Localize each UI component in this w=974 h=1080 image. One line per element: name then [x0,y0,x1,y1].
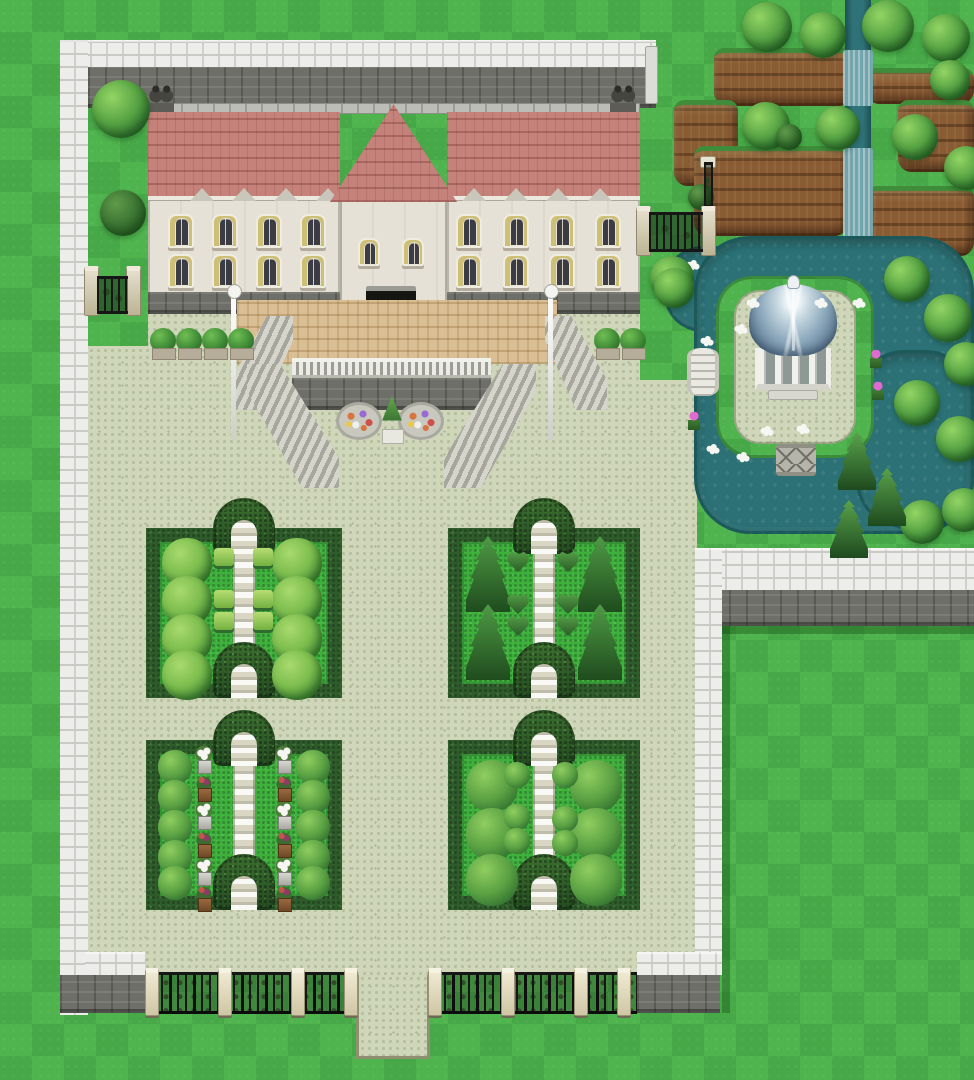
flower-pedestal [196,830,212,858]
game-map: Top-down RPG tile map of a walled mansio… [0,0,974,1080]
stone-bridge-south[interactable] [776,444,816,476]
tree [930,60,970,100]
round-bush [158,780,192,814]
tree [936,416,974,462]
hedge-arch-gate-north[interactable] [213,498,275,554]
lamp-post [231,294,236,440]
potted-bush [202,328,228,360]
north-wall-cap [60,40,656,67]
flower-pedestal [196,858,212,886]
east-wall [695,548,722,975]
shuttered-window [595,254,621,288]
tree [884,256,930,302]
shuttered-window [456,214,482,248]
north-gate-fence-stub [704,162,713,208]
tree [92,80,150,138]
shuttered-window [212,214,238,248]
dirt-cliff-terrace [714,48,852,106]
wall-shadow-south [701,626,974,634]
hedge-arch-gate-south[interactable] [213,642,275,698]
round-bush [504,762,530,788]
bird-statue-pair [610,84,636,112]
shuttered-window [549,254,575,288]
north-iron-gate[interactable] [649,212,703,252]
fence-stone-pillar [501,968,515,1016]
shuttered-window [300,254,326,288]
round-bush [570,854,622,906]
round-bush [158,810,192,844]
flower-pedestal [276,858,292,886]
tree [816,106,860,150]
square-trimmed-bush [214,590,234,608]
round-bush [296,780,330,814]
square-trimmed-bush [253,590,273,608]
south-exit-path[interactable] [356,975,430,1059]
waterfall [843,148,873,238]
shuttered-window [256,214,282,248]
shuttered-window [212,254,238,288]
flower-cluster [796,424,810,436]
round-bush [158,866,192,900]
large-garden-bush [272,650,322,700]
tree [100,190,146,236]
tree [924,294,972,342]
potted-bush [594,328,620,360]
flower-pedestal [196,802,212,830]
potted-bush [228,328,254,360]
shuttered-window [503,254,529,288]
potted-bush [620,328,646,360]
iron-fence [428,972,637,1014]
flower-pedestal [276,746,292,774]
potted-bush [176,328,202,360]
flower-cluster [814,298,828,310]
shuttered-window [358,238,380,266]
fence-stone-pillar [291,968,305,1016]
mansion-roof-right-wing [447,112,640,198]
flower-pedestal [276,774,292,802]
gazebo-finial [787,275,800,289]
hedge-arch-gate-north[interactable] [213,710,275,766]
bottom-left-wall-cap [85,952,145,975]
lamp-post [548,294,553,440]
hedge-arch-gate-south[interactable] [513,854,575,910]
tree [776,124,802,150]
tree [742,2,792,52]
square-trimmed-bush [253,548,273,566]
bottom-wall-left-face [60,975,145,1013]
dirt-cliff-terrace [694,146,848,236]
flower-cluster [734,324,748,336]
flower-cluster [852,298,866,310]
round-bush [552,830,578,856]
tree [654,268,694,308]
shuttered-window [595,214,621,248]
flower-pedestal [276,802,292,830]
bird-statue-pair [148,84,174,112]
tree [892,114,938,160]
fence-stone-pillar [145,968,159,1016]
southeast-wall-face [695,590,974,626]
shuttered-window [456,254,482,288]
west-gate-pillar [126,266,141,316]
flower-pedestal [276,830,292,858]
square-trimmed-bush [253,612,273,630]
terrace-balustrade [292,358,491,378]
flower-pedestal [196,774,212,802]
bottom-wall-right-face [637,975,720,1013]
round-bush [158,750,192,784]
hedge-arch-gate-north[interactable] [513,498,575,554]
flower-cluster [736,452,750,464]
shuttered-window [549,214,575,248]
stone-bridge-west[interactable] [687,348,719,396]
flower-cluster [872,382,884,400]
round-bush [296,810,330,844]
hedge-arch-gate-south[interactable] [213,854,275,910]
flower-pedestal [196,884,212,912]
mansion-roof-left-wing [148,112,340,198]
large-garden-bush [162,650,212,700]
iron-fence [145,972,358,1014]
west-wall [60,40,88,1015]
waterfall [843,50,873,106]
square-trimmed-bush [214,612,234,630]
round-bush [466,854,518,906]
tree [922,14,970,62]
flower-cluster [706,444,720,456]
flower-cluster [688,412,700,430]
gazebo-step[interactable] [768,390,818,400]
flower-cluster [870,350,882,368]
round-bush [504,828,530,854]
hedge-arch-gate-north[interactable] [513,710,575,766]
flower-cluster [760,426,774,438]
shuttered-window [503,214,529,248]
fence-stone-pillar [344,968,358,1016]
round-bush [296,866,330,900]
round-bush [552,806,578,832]
tree [894,380,940,426]
fence-stone-pillar [428,968,442,1016]
round-flower-bed [336,402,382,440]
shuttered-window [402,238,424,266]
tree [900,500,944,544]
west-iron-gate[interactable] [97,276,128,314]
north-wall-end-post [645,46,658,104]
shuttered-window [168,214,194,248]
round-bush [570,760,622,812]
flower-pedestal [196,746,212,774]
north-gate-pillar [701,206,716,256]
potted-bush [150,328,176,360]
gazebo-dome [749,284,837,356]
flower-cluster [746,298,760,310]
tree [862,0,914,52]
fence-stone-pillar [218,968,232,1016]
flower-cluster [700,336,714,348]
shuttered-window [168,254,194,288]
round-bush [504,804,530,830]
fence-stone-pillar [574,968,588,1016]
hedge-arch-gate-south[interactable] [513,642,575,698]
round-bush [296,750,330,784]
tree [800,12,846,58]
fence-stone-pillar [617,968,631,1016]
bottom-right-wall-cap [637,952,722,975]
topiary-planter [379,396,405,444]
shuttered-window [256,254,282,288]
square-trimmed-bush [214,548,234,566]
shuttered-window [300,214,326,248]
flower-pedestal [276,884,292,912]
round-bush [552,762,578,788]
